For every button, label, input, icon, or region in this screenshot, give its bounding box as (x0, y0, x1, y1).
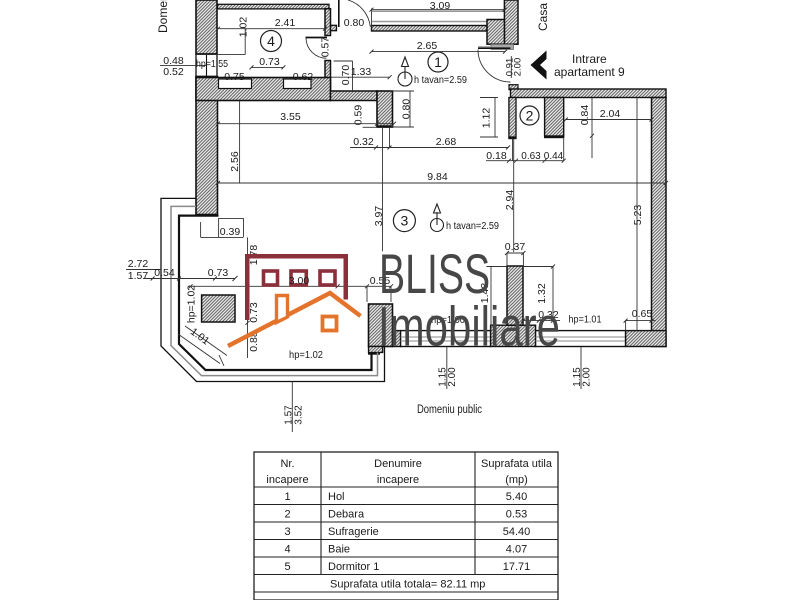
svg-text:2: 2 (526, 108, 534, 124)
svg-text:2: 2 (284, 509, 290, 521)
svg-text:3.55: 3.55 (280, 111, 301, 123)
svg-text:3.52: 3.52 (294, 405, 305, 425)
svg-text:0.37: 0.37 (505, 241, 526, 253)
svg-text:1.02: 1.02 (238, 17, 250, 38)
svg-text:2.65: 2.65 (417, 40, 438, 52)
svg-text:Intrare: Intrare (572, 52, 607, 66)
svg-text:Debara: Debara (328, 509, 365, 521)
svg-text:Baie: Baie (328, 544, 350, 556)
svg-text:h tavan=2.59: h tavan=2.59 (414, 75, 467, 86)
svg-text:hp=1.02: hp=1.02 (289, 349, 323, 361)
svg-text:0.62: 0.62 (293, 71, 314, 83)
svg-text:0.54: 0.54 (154, 267, 175, 279)
svg-text:0.73: 0.73 (259, 56, 280, 68)
svg-text:2.41: 2.41 (275, 17, 296, 29)
svg-text:Suprafata utila: Suprafata utila (481, 458, 553, 470)
svg-text:Suprafata utila totala= 82.11: Suprafata utila totala= 82.11 mp (330, 579, 485, 591)
svg-text:3: 3 (401, 213, 409, 229)
svg-text:Denumire: Denumire (374, 458, 422, 470)
svg-text:2.72: 2.72 (128, 258, 149, 270)
svg-text:Domeniu public: Domeniu public (156, 0, 170, 33)
svg-text:0.44: 0.44 (544, 151, 564, 162)
svg-text:4.07: 4.07 (506, 544, 527, 556)
svg-text:(mp): (mp) (505, 474, 528, 486)
svg-text:incapere: incapere (266, 474, 308, 486)
svg-text:0.75: 0.75 (224, 71, 245, 83)
svg-text:0.57: 0.57 (320, 37, 332, 58)
svg-text:0.59: 0.59 (353, 105, 365, 126)
svg-text:0.63: 0.63 (521, 151, 541, 162)
svg-text:2.00: 2.00 (513, 58, 524, 77)
svg-text:4: 4 (284, 544, 290, 556)
svg-text:5.40: 5.40 (506, 491, 527, 503)
svg-text:1: 1 (434, 54, 442, 70)
svg-text:3.09: 3.09 (430, 0, 451, 12)
svg-text:Casa scarii: Casa scarii (536, 0, 550, 31)
svg-text:0.52: 0.52 (163, 66, 184, 78)
svg-text:0.73: 0.73 (248, 302, 260, 323)
svg-text:3: 3 (284, 526, 290, 538)
svg-text:Imobiliare: Imobiliare (378, 296, 560, 358)
svg-text:Dormitor 1: Dormitor 1 (328, 561, 379, 573)
svg-text:17.71: 17.71 (503, 561, 531, 573)
svg-text:hp=1.55: hp=1.55 (196, 58, 228, 70)
svg-text:0.73: 0.73 (208, 267, 229, 279)
svg-text:0.32: 0.32 (353, 136, 374, 148)
svg-text:0.84: 0.84 (579, 105, 591, 126)
svg-text:apartament 9: apartament 9 (554, 65, 625, 79)
svg-text:1.57: 1.57 (128, 270, 149, 282)
svg-text:hp=1.01: hp=1.01 (569, 314, 602, 326)
svg-text:4: 4 (267, 33, 275, 49)
svg-text:54.40: 54.40 (503, 526, 531, 538)
svg-text:0.53: 0.53 (506, 509, 527, 521)
svg-text:2.00: 2.00 (447, 367, 458, 387)
svg-text:0.18: 0.18 (486, 150, 507, 162)
svg-text:3.97: 3.97 (373, 206, 385, 227)
svg-text:incapere: incapere (377, 474, 419, 486)
svg-text:0.39: 0.39 (220, 226, 241, 238)
svg-text:2.00: 2.00 (582, 367, 593, 387)
svg-text:1.12: 1.12 (481, 108, 493, 129)
svg-text:2.56: 2.56 (229, 151, 241, 172)
svg-text:h tavan=2.59: h tavan=2.59 (446, 221, 499, 232)
svg-text:5.23: 5.23 (632, 205, 644, 226)
svg-text:1: 1 (284, 491, 290, 503)
svg-text:Domeniu public: Domeniu public (417, 404, 482, 416)
svg-text:5: 5 (284, 561, 290, 573)
svg-text:0.80: 0.80 (344, 17, 365, 29)
svg-text:hp=1.02: hp=1.02 (186, 285, 198, 323)
svg-text:3.00: 3.00 (289, 275, 310, 287)
svg-text:2.68: 2.68 (436, 136, 457, 148)
svg-text:Nr.: Nr. (280, 458, 294, 470)
svg-text:0.65: 0.65 (632, 308, 653, 320)
svg-text:0.80: 0.80 (401, 99, 413, 120)
svg-text:Hol: Hol (328, 491, 345, 503)
svg-text:2.04: 2.04 (600, 108, 621, 120)
svg-text:9.84: 9.84 (427, 171, 448, 183)
svg-text:Sufragerie: Sufragerie (328, 526, 379, 538)
svg-text:2.94: 2.94 (504, 190, 516, 211)
svg-text:1.33: 1.33 (351, 66, 372, 78)
